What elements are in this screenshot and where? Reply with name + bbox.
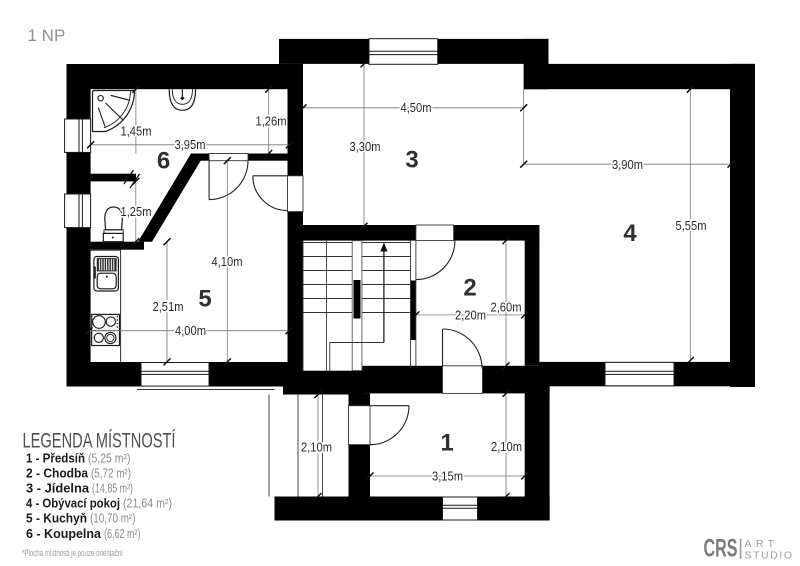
svg-text:3 - Jídelna: 3 - Jídelna <box>26 482 90 496</box>
svg-text:5 - Kuchyň: 5 - Kuchyň <box>26 512 87 526</box>
svg-text:(5,25 m²): (5,25 m²) <box>88 452 131 466</box>
svg-text:2,20m: 2,20m <box>455 308 486 323</box>
svg-text:(5,72 m²): (5,72 m²) <box>91 467 131 481</box>
svg-text:6: 6 <box>157 148 170 175</box>
svg-text:1,45m: 1,45m <box>121 124 152 139</box>
svg-text:1 - Předsíň: 1 - Předsíň <box>26 452 85 466</box>
svg-text:(14,85 m²): (14,85 m²) <box>92 482 133 496</box>
svg-text:2,10m: 2,10m <box>301 440 332 455</box>
svg-text:ART: ART <box>745 538 775 550</box>
svg-text:(6,62 m²): (6,62 m²) <box>104 527 141 541</box>
svg-text:3: 3 <box>405 147 418 174</box>
svg-text:3,95m: 3,95m <box>175 137 206 152</box>
svg-text:LEGENDA MÍSTNOSTÍ: LEGENDA MÍSTNOSTÍ <box>23 430 176 453</box>
svg-text:4,50m: 4,50m <box>401 100 432 115</box>
svg-text:*Plocha místností je pouze ori: *Plocha místností je pouze orientační <box>22 548 123 558</box>
svg-text:2 - Chodba: 2 - Chodba <box>26 467 89 481</box>
svg-text:2,10m: 2,10m <box>491 439 522 454</box>
svg-text:(21,64 m²): (21,64 m²) <box>123 497 172 511</box>
svg-text:4,00m: 4,00m <box>175 323 206 338</box>
svg-text:6 - Koupelna: 6 - Koupelna <box>26 527 102 541</box>
svg-text:3,15m: 3,15m <box>432 469 463 484</box>
svg-text:2,60m: 2,60m <box>491 300 522 315</box>
svg-text:1,25m: 1,25m <box>121 204 152 219</box>
svg-text:1: 1 <box>440 430 453 457</box>
svg-text:2: 2 <box>463 275 476 302</box>
svg-text:1 NP: 1 NP <box>28 26 66 45</box>
svg-text:4,10m: 4,10m <box>212 254 243 269</box>
svg-text:(10,70 m²): (10,70 m²) <box>90 512 136 526</box>
svg-text:1,26m: 1,26m <box>256 114 287 129</box>
svg-text:3,30m: 3,30m <box>350 139 381 154</box>
svg-text:5,55m: 5,55m <box>676 218 707 233</box>
svg-text:4 - Obývací pokoj: 4 - Obývací pokoj <box>26 497 120 511</box>
svg-text:4: 4 <box>623 220 637 247</box>
svg-text:CRS: CRS <box>704 535 738 563</box>
svg-text:5: 5 <box>198 286 211 313</box>
svg-text:2,51m: 2,51m <box>153 299 184 314</box>
svg-text:3,90m: 3,90m <box>612 157 643 172</box>
